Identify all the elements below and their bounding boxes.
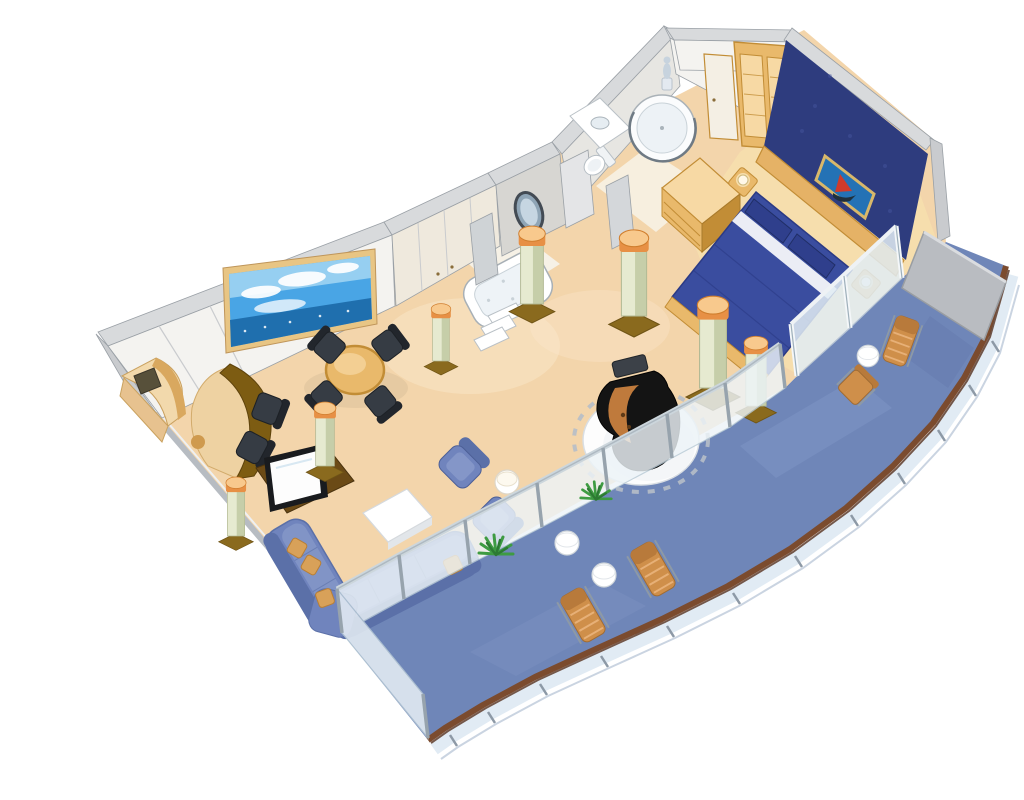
suite-floor-plan-figure <box>40 16 1024 784</box>
suite-floor-plan <box>40 16 1024 784</box>
circular-shower <box>629 95 696 161</box>
bedroom-door <box>704 54 738 140</box>
drum-table-2 <box>592 563 616 587</box>
side-table <box>495 470 519 494</box>
drum-table <box>555 531 579 555</box>
drum-table-3 <box>857 345 879 367</box>
bar-accessory <box>191 435 205 449</box>
